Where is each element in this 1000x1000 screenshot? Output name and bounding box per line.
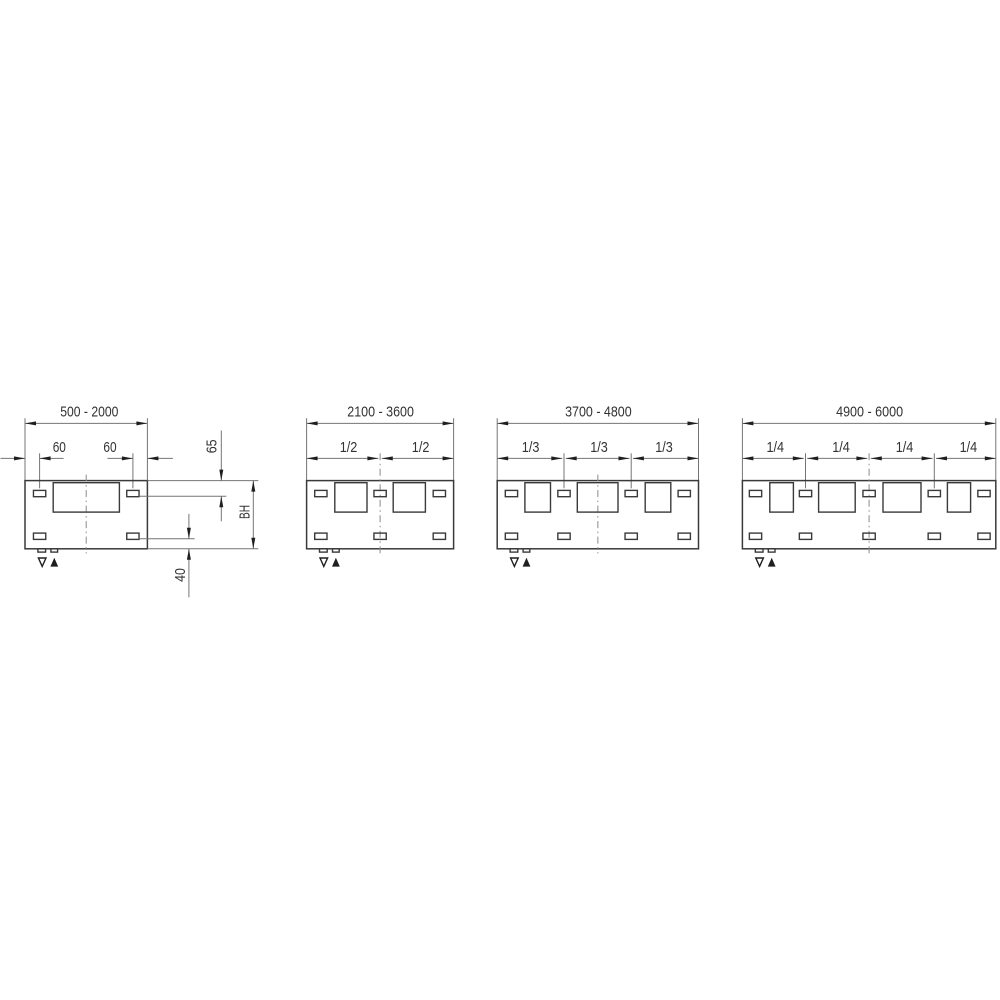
svg-text:1/3: 1/3 (655, 440, 673, 456)
svg-text:60: 60 (53, 440, 66, 456)
svg-text:1/3: 1/3 (590, 440, 608, 456)
svg-text:BH: BH (236, 505, 253, 519)
svg-text:2100 - 3600: 2100 - 3600 (347, 404, 414, 420)
svg-text:1/2: 1/2 (340, 440, 358, 456)
svg-text:500 - 2000: 500 - 2000 (60, 404, 118, 420)
svg-text:40: 40 (172, 568, 189, 582)
svg-text:1/4: 1/4 (896, 440, 914, 456)
svg-text:60: 60 (103, 440, 116, 456)
svg-text:4900 - 6000: 4900 - 6000 (836, 404, 903, 420)
svg-text:3700 - 4800: 3700 - 4800 (565, 404, 632, 420)
svg-text:1/3: 1/3 (522, 440, 540, 456)
svg-text:1/4: 1/4 (832, 440, 850, 456)
svg-text:1/4: 1/4 (960, 440, 978, 456)
svg-text:65: 65 (203, 440, 220, 454)
svg-text:1/2: 1/2 (412, 440, 430, 456)
svg-text:1/4: 1/4 (767, 440, 785, 456)
